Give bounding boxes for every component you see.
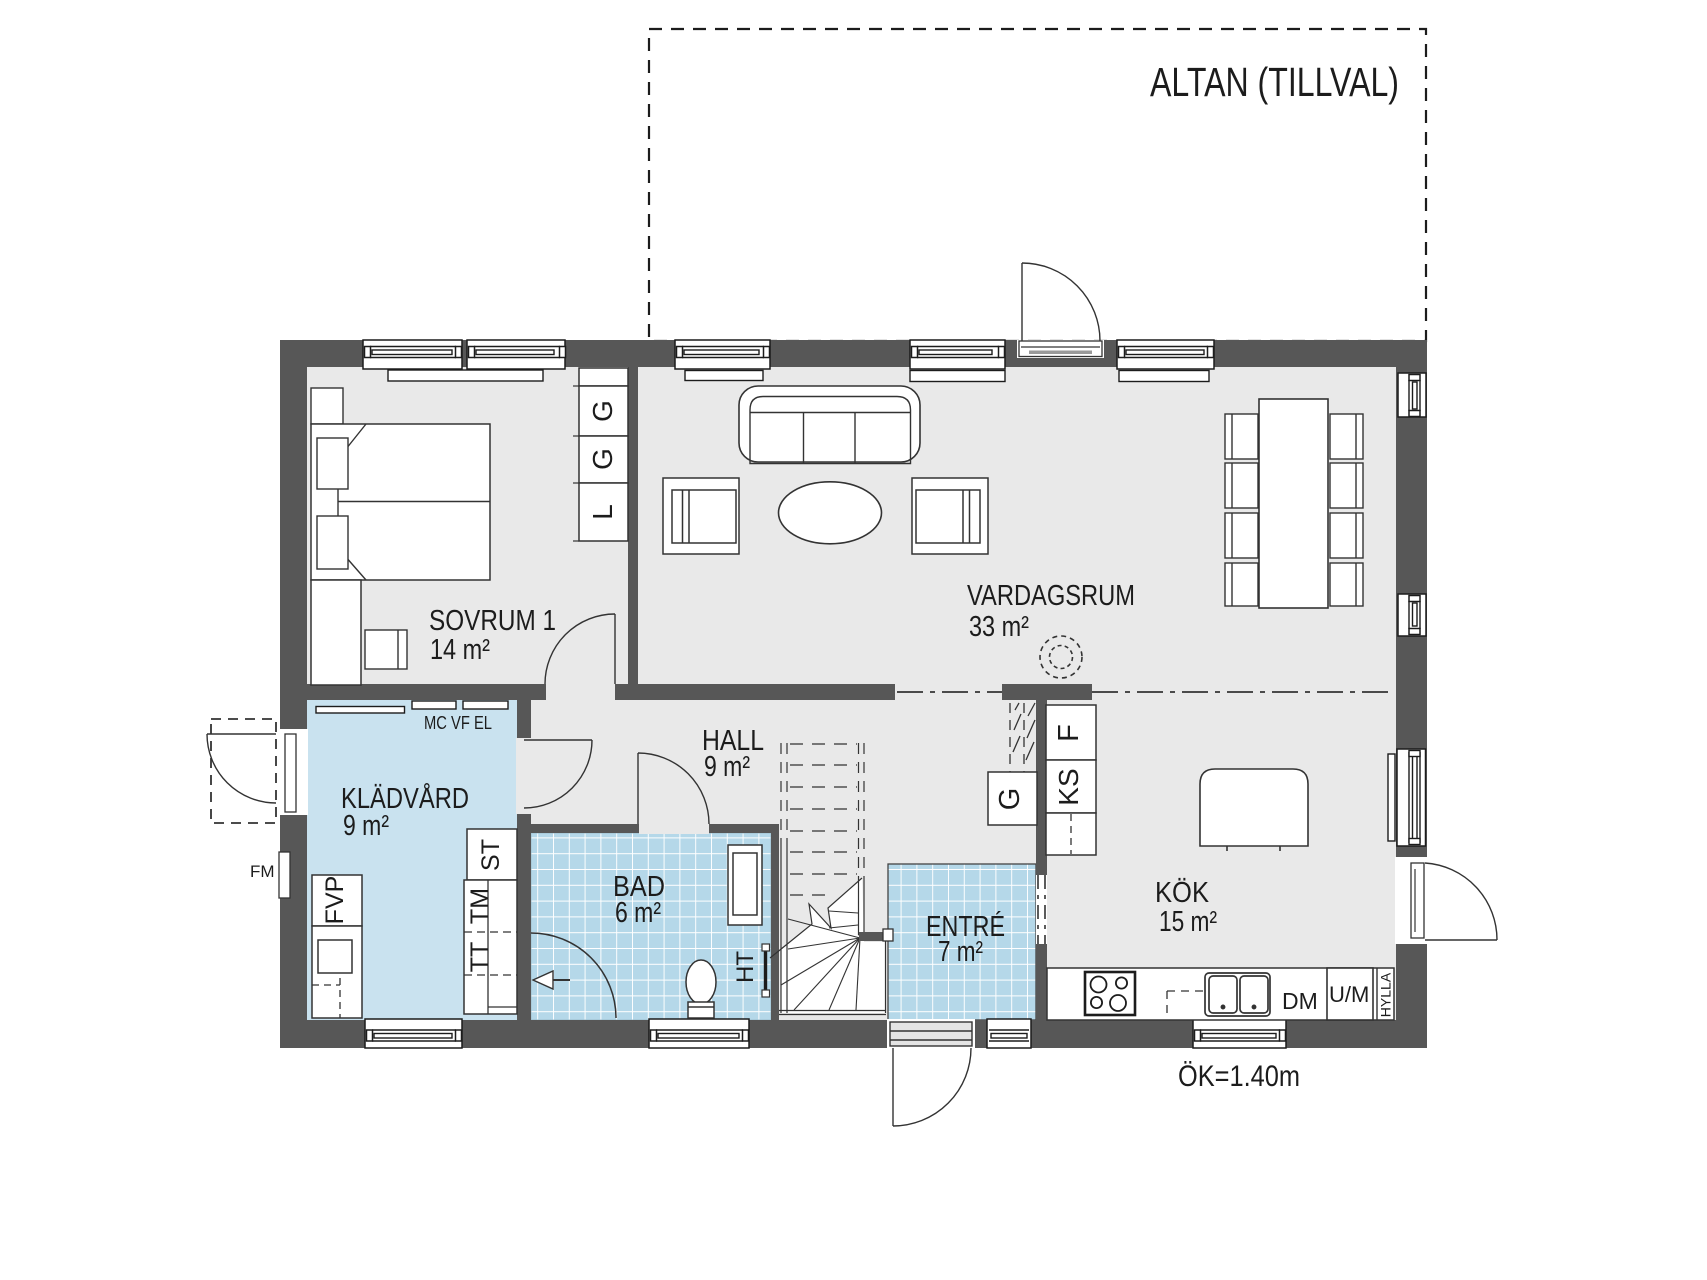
svg-text:SOVRUM 1: SOVRUM 1	[429, 605, 556, 637]
svg-text:9 m²: 9 m²	[704, 751, 750, 783]
svg-text:ST: ST	[477, 839, 505, 871]
svg-text:G: G	[994, 788, 1026, 811]
svg-text:TT: TT	[466, 942, 494, 973]
svg-text:6 m²: 6 m²	[615, 897, 661, 929]
svg-text:FVP: FVP	[321, 876, 349, 925]
svg-text:DM: DM	[1282, 988, 1318, 1014]
svg-text:MC VF EL: MC VF EL	[424, 713, 492, 733]
svg-text:ALTAN (TILLVAL): ALTAN (TILLVAL)	[1150, 59, 1399, 105]
svg-text:HT: HT	[732, 951, 759, 983]
svg-text:7 m²: 7 m²	[938, 936, 983, 968]
svg-text:F: F	[1053, 724, 1085, 742]
svg-text:L: L	[587, 504, 618, 520]
svg-text:G: G	[587, 448, 618, 470]
svg-text:ÖK=1.40m: ÖK=1.40m	[1178, 1060, 1300, 1093]
svg-text:HYLLA: HYLLA	[1378, 972, 1394, 1017]
svg-text:G: G	[587, 400, 618, 422]
svg-text:14 m²: 14 m²	[430, 634, 490, 666]
svg-text:15 m²: 15 m²	[1159, 906, 1217, 938]
svg-text:U/M: U/M	[1329, 982, 1369, 1007]
svg-text:TM: TM	[466, 888, 494, 924]
svg-text:FM: FM	[250, 862, 275, 881]
svg-text:9 m²: 9 m²	[343, 810, 389, 842]
svg-text:VARDAGSRUM: VARDAGSRUM	[967, 580, 1135, 612]
svg-text:KS: KS	[1053, 768, 1084, 805]
svg-text:33 m²: 33 m²	[969, 611, 1029, 643]
svg-text:KÖK: KÖK	[1155, 877, 1209, 909]
